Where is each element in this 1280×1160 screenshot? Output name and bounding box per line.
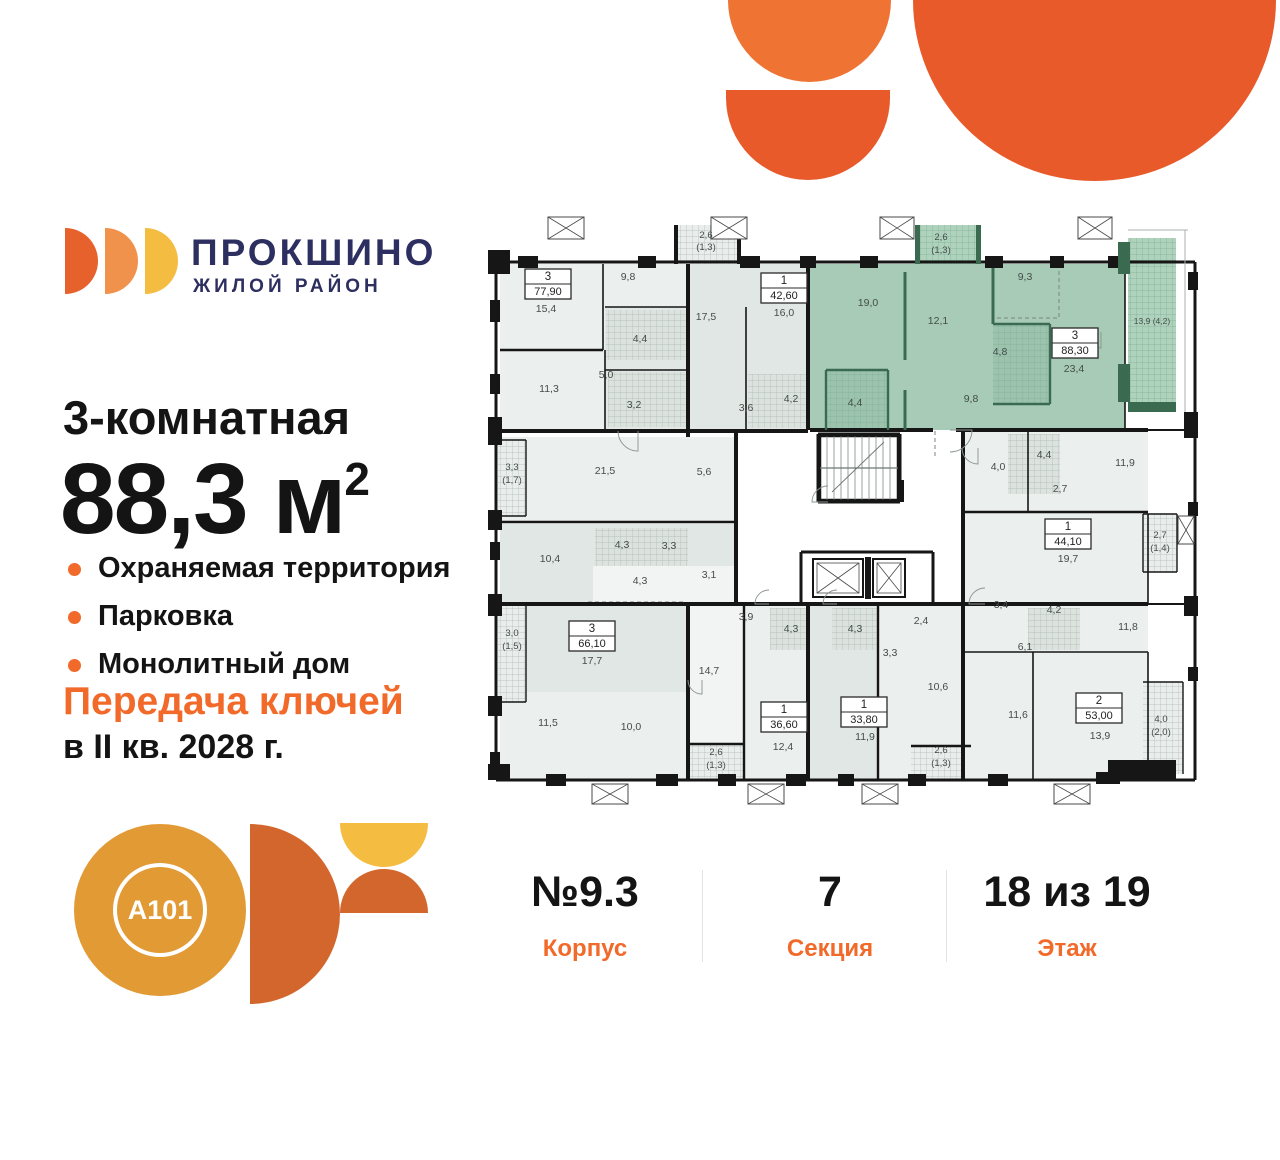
svg-text:21,5: 21,5 — [595, 465, 616, 477]
svg-text:3: 3 — [1072, 330, 1078, 342]
brand-tagline: ЖИЛОЙ РАЙОН — [193, 276, 382, 298]
svg-text:13,9: 13,9 — [1090, 730, 1111, 742]
svg-text:88,30: 88,30 — [1061, 345, 1089, 357]
svg-text:2,6: 2,6 — [699, 230, 712, 241]
feature-label: Охраняемая территория — [98, 552, 450, 584]
svg-text:(1,3): (1,3) — [931, 758, 951, 769]
feature-item: Парковка — [66, 600, 450, 633]
svg-text:(2,0): (2,0) — [1151, 727, 1171, 738]
svg-text:12,1: 12,1 — [928, 315, 949, 327]
svg-text:4,2: 4,2 — [784, 393, 799, 405]
svg-text:44,10: 44,10 — [1054, 536, 1082, 548]
svg-text:5,6: 5,6 — [697, 466, 712, 478]
svg-text:10,4: 10,4 — [540, 553, 561, 565]
svg-text:(1,3): (1,3) — [706, 760, 726, 771]
svg-text:2: 2 — [1096, 695, 1102, 707]
svg-text:2,4: 2,4 — [914, 615, 929, 627]
svg-text:1: 1 — [781, 275, 787, 287]
svg-text:11,9: 11,9 — [855, 731, 875, 743]
floor-plan: 15,49,811,35,04,43,22,6(1,3)21,55,63,3(1… — [488, 212, 1208, 812]
svg-text:66,10: 66,10 — [578, 638, 606, 650]
stat-floor-label: Этаж — [947, 935, 1187, 963]
stat-divider — [946, 870, 947, 962]
bullet-icon — [68, 659, 81, 672]
feature-list: Охраняемая территория Парковка Монолитны… — [66, 552, 450, 696]
svg-text:4,4: 4,4 — [633, 333, 648, 345]
stat-divider — [702, 870, 703, 962]
svg-text:4,3: 4,3 — [784, 623, 799, 635]
stat-section: 7 Секция — [710, 868, 950, 963]
svg-text:11,9: 11,9 — [1115, 457, 1135, 469]
svg-text:(1,7): (1,7) — [502, 475, 522, 486]
svg-text:1: 1 — [1065, 521, 1071, 533]
svg-text:2,7: 2,7 — [1153, 530, 1166, 541]
svg-text:10,0: 10,0 — [621, 721, 642, 733]
stat-building-label: Корпус — [465, 935, 705, 963]
svg-text:16,0: 16,0 — [774, 307, 795, 319]
svg-text:13,9 (4,2): 13,9 (4,2) — [1134, 316, 1171, 326]
svg-text:15,4: 15,4 — [536, 303, 557, 315]
svg-text:4,4: 4,4 — [848, 397, 863, 409]
bullet-icon — [68, 563, 81, 576]
stat-building-value: №9.3 — [465, 868, 705, 917]
svg-text:9,8: 9,8 — [621, 271, 636, 283]
stat-building: №9.3 Корпус — [465, 868, 705, 963]
decor-semicircle-small-top — [728, 0, 891, 82]
svg-text:4,2: 4,2 — [1047, 604, 1062, 616]
svg-text:2,7: 2,7 — [1053, 483, 1068, 495]
svg-text:1: 1 — [861, 699, 867, 711]
svg-text:9,3: 9,3 — [1018, 271, 1033, 283]
svg-text:33,80: 33,80 — [850, 714, 878, 726]
svg-text:11,5: 11,5 — [538, 717, 558, 729]
svg-text:9,8: 9,8 — [964, 393, 979, 405]
svg-text:5,0: 5,0 — [599, 369, 614, 381]
feature-item: Монолитный дом — [66, 648, 450, 681]
svg-text:17,5: 17,5 — [696, 311, 717, 323]
decor-semicircle-big — [913, 0, 1276, 181]
svg-text:77,90: 77,90 — [534, 286, 562, 298]
svg-text:2,6: 2,6 — [934, 745, 947, 756]
svg-text:11,3: 11,3 — [539, 383, 559, 395]
area-sup: 2 — [344, 453, 370, 505]
svg-text:36,60: 36,60 — [770, 719, 798, 731]
brand-petals-icon — [63, 226, 183, 296]
svg-text:17,7: 17,7 — [582, 655, 603, 667]
svg-text:2,6: 2,6 — [709, 747, 722, 758]
bullet-icon — [68, 611, 81, 624]
stat-section-label: Секция — [710, 935, 950, 963]
svg-text:4,3: 4,3 — [848, 623, 863, 635]
developer-logo: A101 — [70, 818, 442, 1016]
brand-name: ПРОКШИНО — [191, 232, 436, 274]
area-unit: м — [272, 443, 344, 555]
svg-text:4,8: 4,8 — [993, 346, 1008, 358]
svg-text:3,4: 3,4 — [994, 599, 1009, 611]
stat-floor-value: 18 из 19 — [947, 868, 1187, 917]
svg-text:(1,5): (1,5) — [502, 641, 522, 652]
stat-section-value: 7 — [710, 868, 950, 917]
feature-label: Монолитный дом — [98, 648, 350, 680]
feature-item: Охраняемая территория — [66, 552, 450, 585]
feature-label: Парковка — [98, 600, 233, 632]
svg-text:(1,3): (1,3) — [696, 242, 716, 253]
svg-text:3,0: 3,0 — [505, 628, 518, 639]
svg-text:1: 1 — [781, 704, 787, 716]
listing-area: 88,3 м2 — [60, 442, 370, 557]
handover-line1: Передача ключей — [63, 680, 404, 724]
svg-text:3,3: 3,3 — [883, 647, 898, 659]
area-value: 88,3 — [60, 443, 247, 555]
svg-text:12,4: 12,4 — [773, 741, 794, 753]
svg-text:10,6: 10,6 — [928, 681, 949, 693]
svg-text:4,3: 4,3 — [615, 539, 630, 551]
svg-text:19,7: 19,7 — [1058, 553, 1079, 565]
svg-text:(1,3): (1,3) — [931, 245, 951, 256]
svg-text:3: 3 — [545, 271, 551, 283]
svg-text:42,60: 42,60 — [770, 290, 798, 302]
svg-text:53,00: 53,00 — [1085, 710, 1113, 722]
developer-logo-text: A101 — [128, 895, 193, 925]
listing-card: { "brand": { "name": "ПРОКШИНО", "taglin… — [0, 0, 1280, 1160]
stat-floor: 18 из 19 Этаж — [947, 868, 1187, 963]
svg-text:2,6: 2,6 — [934, 232, 947, 243]
handover-line2: в II кв. 2028 г. — [63, 728, 284, 767]
svg-text:4,3: 4,3 — [633, 575, 648, 587]
listing-title: 3-комнатная — [63, 390, 350, 445]
decor-semicircle-small-bottom — [726, 90, 890, 180]
svg-text:3: 3 — [589, 623, 595, 635]
svg-text:11,6: 11,6 — [1008, 709, 1028, 721]
svg-text:3,6: 3,6 — [739, 402, 754, 414]
svg-text:14,7: 14,7 — [699, 665, 720, 677]
svg-text:19,0: 19,0 — [858, 297, 879, 309]
svg-text:3,1: 3,1 — [702, 569, 717, 581]
svg-text:3,3: 3,3 — [505, 462, 518, 473]
svg-text:3,2: 3,2 — [627, 399, 642, 411]
svg-text:4,0: 4,0 — [1154, 714, 1167, 725]
svg-text:4,4: 4,4 — [1037, 449, 1052, 461]
svg-text:3,9: 3,9 — [739, 611, 754, 623]
svg-text:23,4: 23,4 — [1064, 363, 1085, 375]
svg-text:11,8: 11,8 — [1118, 621, 1138, 633]
svg-text:4,0: 4,0 — [991, 461, 1006, 473]
svg-text:6,1: 6,1 — [1018, 641, 1033, 653]
svg-text:3,3: 3,3 — [662, 540, 677, 552]
brand-logo: ПРОКШИНО ЖИЛОЙ РАЙОН — [63, 226, 463, 306]
svg-text:(1,4): (1,4) — [1150, 543, 1170, 554]
